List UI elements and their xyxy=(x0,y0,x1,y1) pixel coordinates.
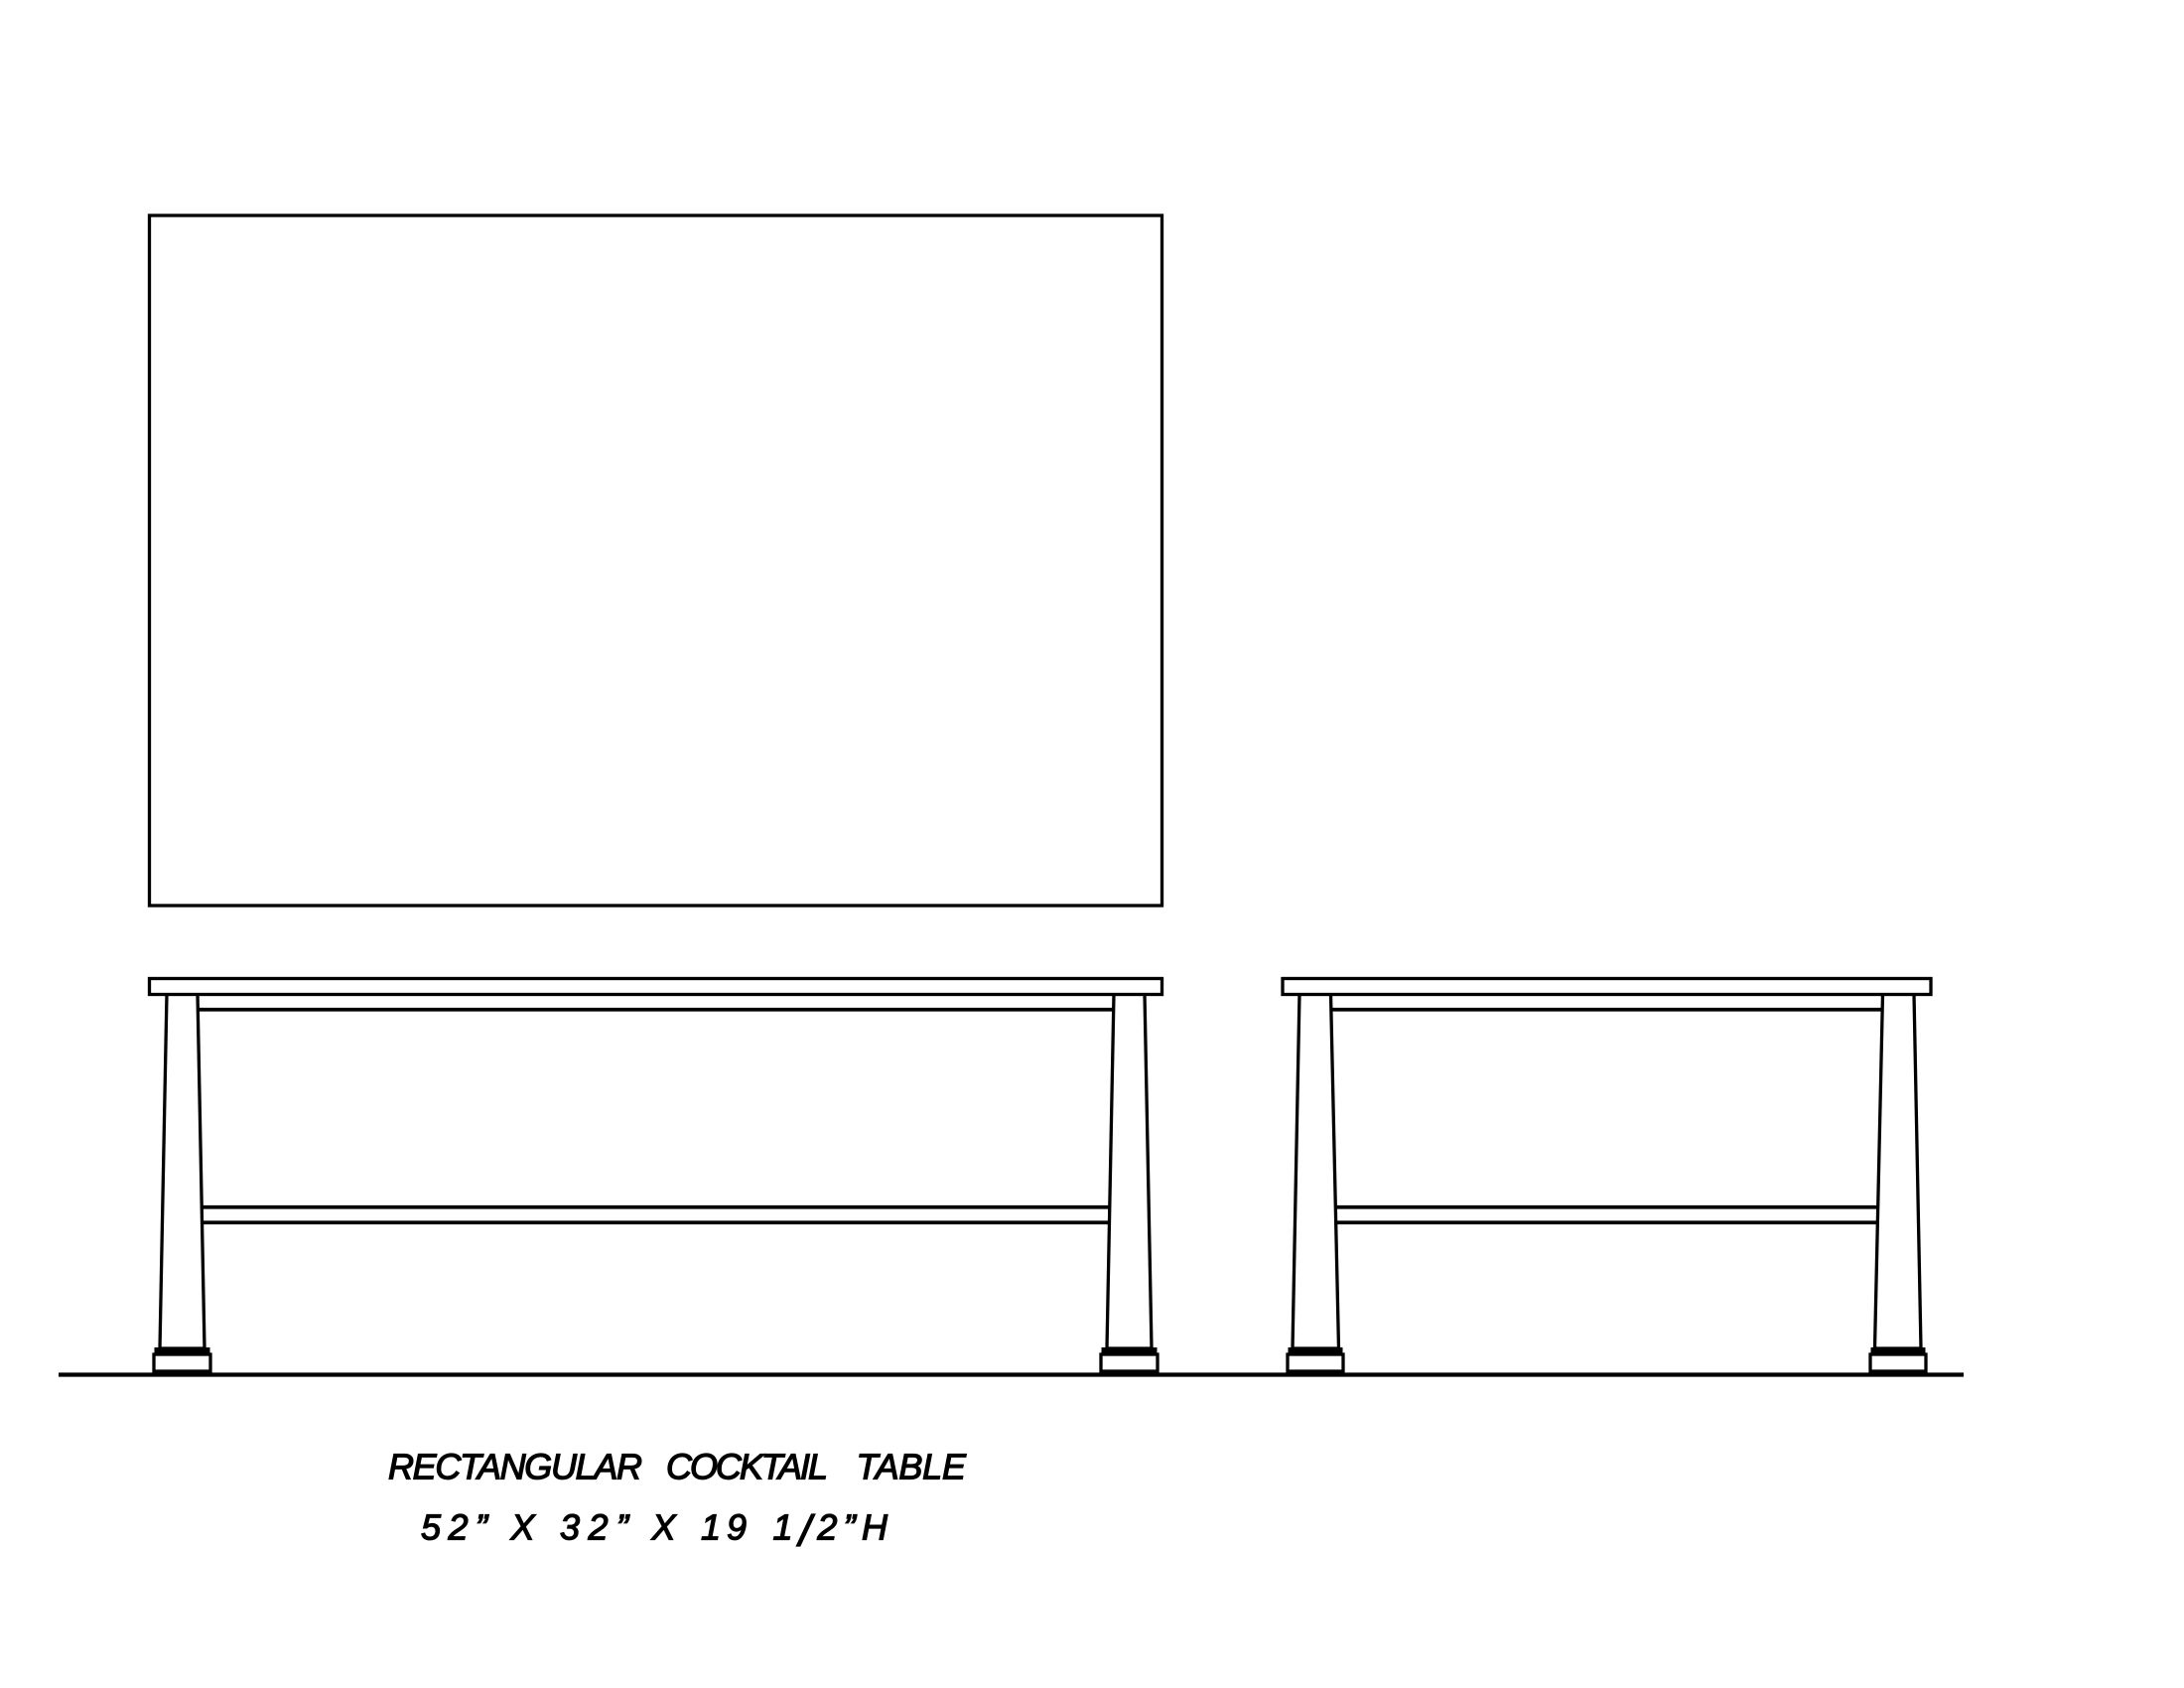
svg-text:COCKTAIL: COCKTAIL xyxy=(666,1447,828,1487)
svg-text:X: X xyxy=(510,1507,537,1548)
svg-text:X: X xyxy=(651,1507,678,1548)
svg-text:TABLE: TABLE xyxy=(857,1447,967,1487)
svg-text:52”: 52” xyxy=(421,1507,489,1548)
svg-text:RECTANGULAR: RECTANGULAR xyxy=(388,1447,642,1487)
svg-text:32”: 32” xyxy=(560,1507,630,1548)
